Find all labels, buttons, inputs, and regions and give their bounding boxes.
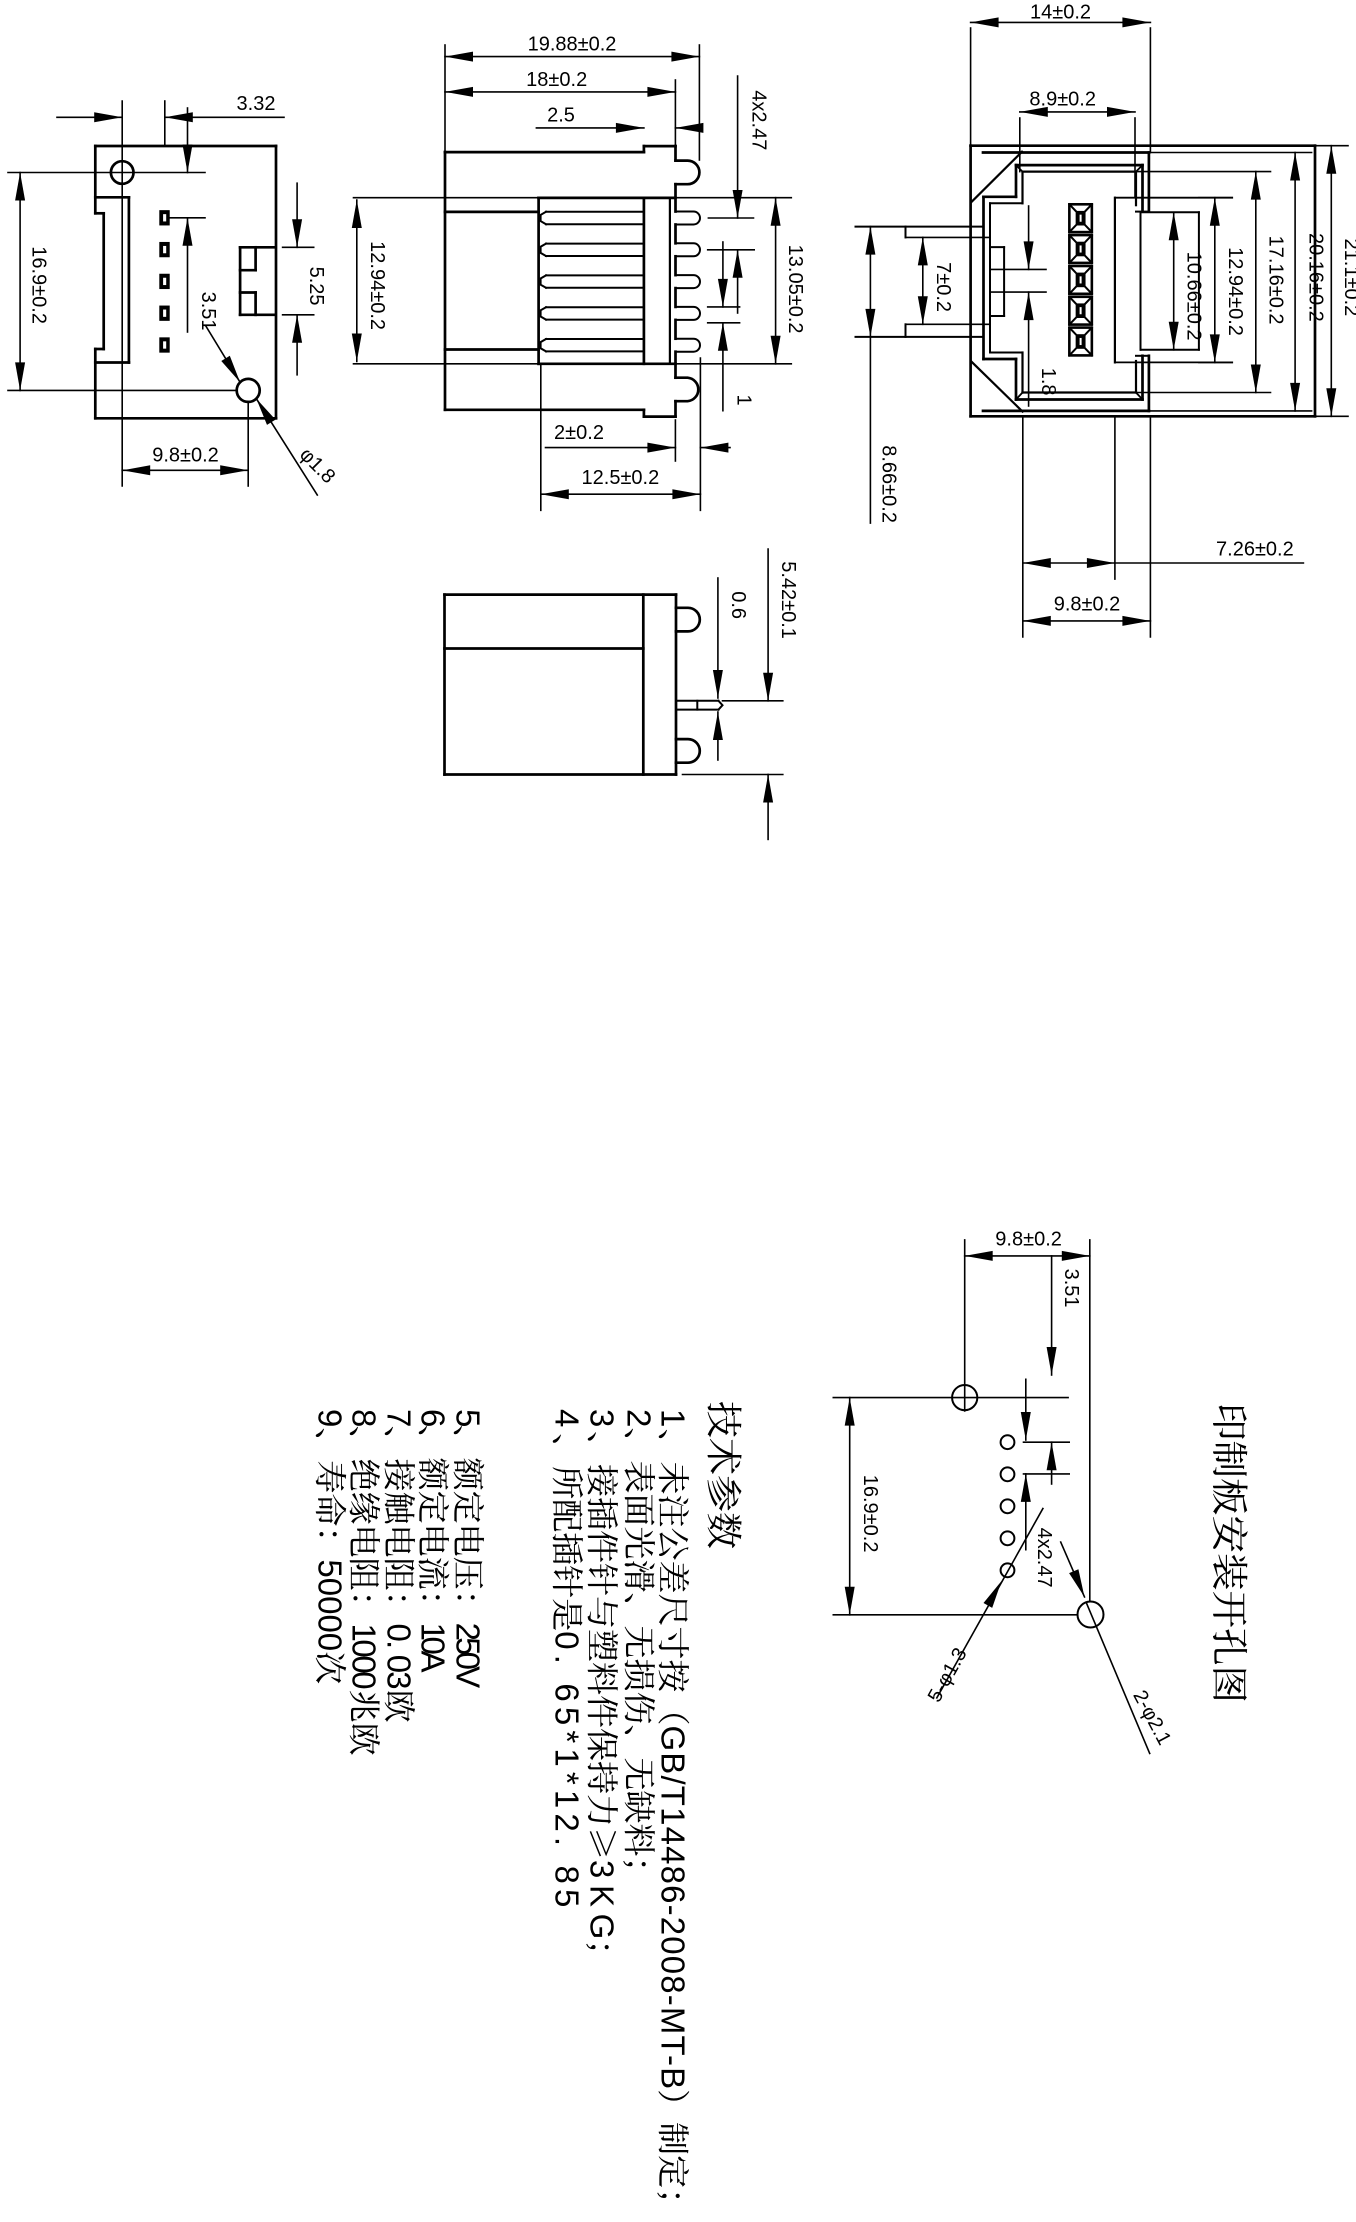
svg-text:12.94±0.2: 12.94±0.2 xyxy=(366,241,388,330)
svg-text:16.9±0.2: 16.9±0.2 xyxy=(28,246,50,324)
svg-text:9.8±0.2: 9.8±0.2 xyxy=(152,445,219,467)
svg-text:2±0.2: 2±0.2 xyxy=(554,422,604,444)
svg-text:20.16±0.2: 20.16±0.2 xyxy=(1305,233,1327,322)
svg-text:3KG: 3KG xyxy=(583,1860,620,1939)
svg-text:10.66±0.2: 10.66±0.2 xyxy=(1183,252,1205,341)
svg-text:21.1±0.2: 21.1±0.2 xyxy=(1340,239,1356,317)
svg-text:14±0.2: 14±0.2 xyxy=(1030,2,1091,24)
svg-text:1: 1 xyxy=(733,395,755,406)
svg-text:9.8±0.2: 9.8±0.2 xyxy=(995,1229,1062,1251)
svg-text:4x2.47: 4x2.47 xyxy=(747,90,769,150)
svg-text:6: 6 xyxy=(414,1409,451,1427)
svg-text:18±0.2: 18±0.2 xyxy=(526,69,587,91)
svg-text:3: 3 xyxy=(583,1409,620,1427)
svg-text:17.16±0.2: 17.16±0.2 xyxy=(1265,236,1287,325)
svg-text:10A: 10A xyxy=(414,1623,451,1673)
svg-text:8.66±0.2: 8.66±0.2 xyxy=(878,445,900,523)
svg-text:4: 4 xyxy=(548,1409,585,1427)
svg-text:7: 7 xyxy=(380,1409,417,1427)
svg-text:3.51: 3.51 xyxy=(197,292,219,331)
svg-text:5.25: 5.25 xyxy=(305,267,327,306)
svg-text:12.94±0.2: 12.94±0.2 xyxy=(1224,247,1246,336)
svg-text:3.51: 3.51 xyxy=(1060,1269,1082,1308)
svg-text:9.8±0.2: 9.8±0.2 xyxy=(1054,594,1121,616)
svg-text:GB/T14486-2008-MT-B: GB/T14486-2008-MT-B xyxy=(654,1726,691,2090)
svg-text:2: 2 xyxy=(620,1409,657,1427)
svg-text:1.8: 1.8 xyxy=(1037,368,1059,396)
svg-text:8.9±0.2: 8.9±0.2 xyxy=(1029,89,1096,111)
svg-text:13.05±0.2: 13.05±0.2 xyxy=(784,245,806,334)
svg-text:12.5±0.2: 12.5±0.2 xyxy=(582,467,660,489)
svg-text:2.5: 2.5 xyxy=(547,105,575,127)
svg-text:8: 8 xyxy=(345,1409,382,1427)
svg-text:19.88±0.2: 19.88±0.2 xyxy=(528,34,617,56)
svg-text:5: 5 xyxy=(449,1409,486,1427)
svg-text:16.9±0.2: 16.9±0.2 xyxy=(859,1475,881,1553)
svg-text:3.32: 3.32 xyxy=(237,93,276,115)
svg-text:4x2.47: 4x2.47 xyxy=(1033,1528,1055,1588)
svg-text:250V: 250V xyxy=(449,1623,486,1689)
svg-text:7±0.2: 7±0.2 xyxy=(932,262,954,312)
svg-text:1: 1 xyxy=(654,1409,691,1427)
svg-text:5.42±0.1: 5.42±0.1 xyxy=(777,561,799,639)
svg-text:1000: 1000 xyxy=(345,1624,382,1690)
svg-text:9: 9 xyxy=(311,1409,348,1427)
svg-text:7.26±0.2: 7.26±0.2 xyxy=(1216,538,1294,560)
svg-text:0.6: 0.6 xyxy=(727,591,749,619)
svg-text:50000: 50000 xyxy=(311,1559,348,1651)
svg-text:0. 03: 0. 03 xyxy=(380,1624,417,1690)
